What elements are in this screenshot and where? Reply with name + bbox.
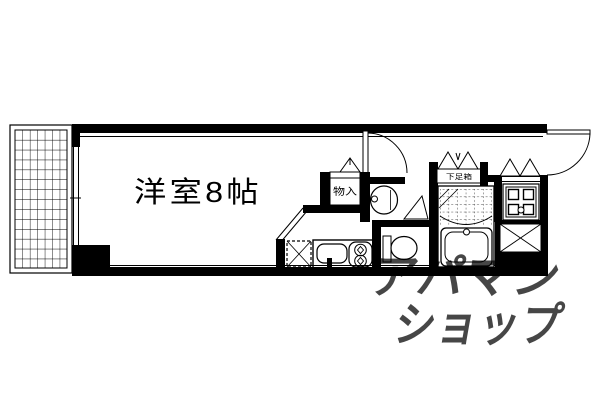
laundry-closet	[487, 159, 540, 222]
wall-window-jamb-top	[72, 133, 80, 147]
toilet-wall-top	[372, 220, 432, 227]
shoe-cabinet-label: 下足箱	[446, 172, 472, 181]
balcony-tile-grid-icon	[15, 130, 67, 268]
watermark-line2: ショップ	[390, 299, 567, 352]
pan-drain-icon	[518, 207, 524, 213]
watermark-line1: アパマン	[366, 251, 565, 304]
watermark-logo: アパマン ショップ	[366, 251, 567, 352]
entrance-door-arc-icon	[547, 134, 590, 175]
room-door-leaf	[363, 131, 368, 173]
kitchen	[287, 240, 374, 271]
washroom-wall-top	[362, 177, 405, 184]
room-door	[363, 131, 407, 173]
closet-monoire: 物入	[303, 158, 370, 222]
washroom-folding-door-icon	[404, 196, 428, 219]
kitchen-faucet-icon	[327, 258, 332, 271]
wall-right	[540, 175, 548, 222]
closet-wall-bottom	[303, 205, 370, 213]
entrance-door	[547, 130, 590, 175]
room-door-arc-icon	[368, 133, 407, 173]
western-room: 洋室8帖	[134, 176, 262, 209]
room-label: 洋室8帖	[134, 176, 262, 209]
washroom	[362, 177, 428, 219]
floorplan-page: 洋室8帖 物入	[0, 0, 600, 400]
wall-top	[72, 124, 547, 133]
burner-icon	[358, 258, 364, 265]
wash-basin-icon	[371, 186, 398, 214]
pipe-space	[500, 224, 541, 252]
closet-label: 物入	[333, 185, 357, 198]
stove-icon	[349, 242, 372, 267]
burner-icon	[358, 247, 364, 254]
laundry-bifold-door-icon	[500, 159, 540, 176]
shoe-cabinet-bifold-door-icon	[438, 152, 478, 169]
wall-pillar-bottom-left	[72, 245, 110, 269]
laundry-wall-left	[494, 182, 502, 222]
floorplan-svg: 洋室8帖 物入	[0, 0, 600, 400]
bathtub-faucet-notch	[464, 229, 470, 235]
diagonal-wall	[276, 208, 307, 268]
balcony	[10, 125, 72, 273]
entrance-door-leaf	[547, 130, 590, 134]
closet-door-sill	[330, 172, 360, 178]
wall-kitchen-left	[276, 239, 285, 268]
